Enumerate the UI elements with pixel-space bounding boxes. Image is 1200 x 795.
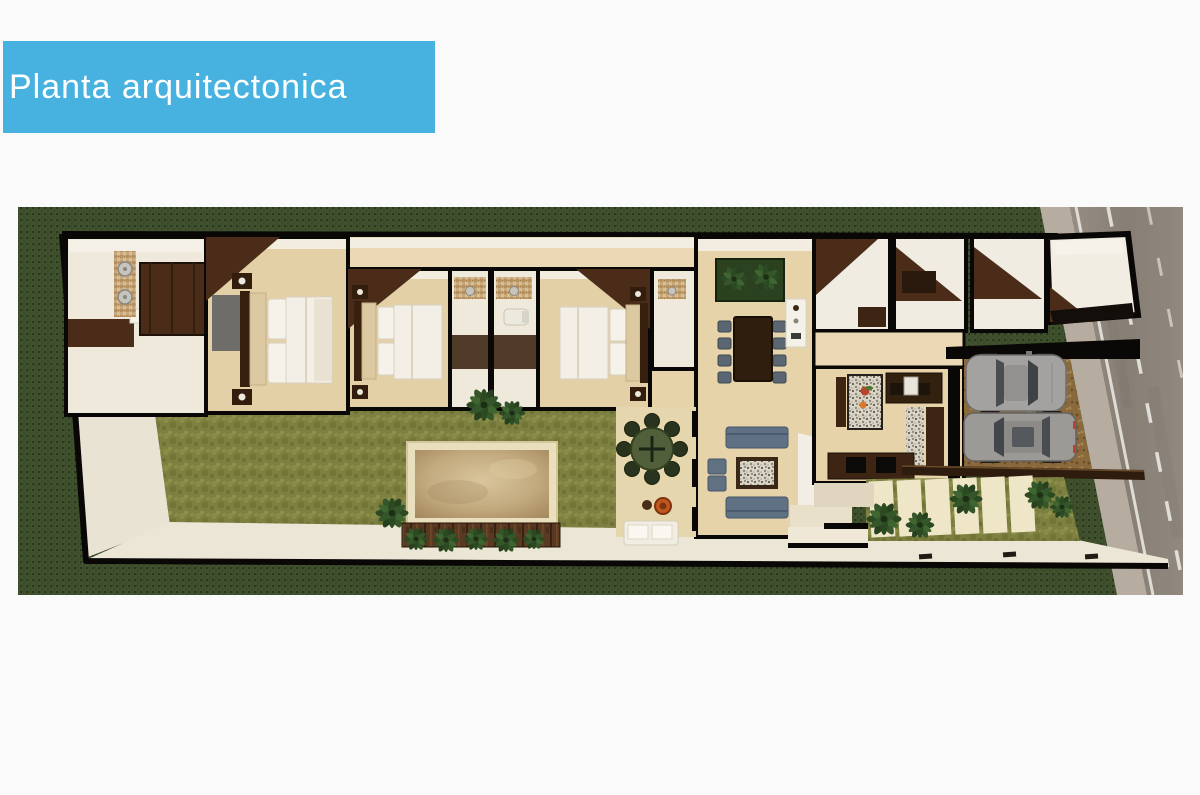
garage-storage [1047, 234, 1138, 325]
outdoor-dining-set [617, 414, 688, 485]
double-bed-1 [240, 291, 332, 387]
bathroom-1 [450, 269, 490, 409]
title-banner: Planta arquitectonica [3, 41, 435, 133]
pool [407, 442, 557, 526]
hall [652, 371, 696, 409]
bathroom-3 [652, 269, 696, 369]
dining-living-column [696, 237, 824, 537]
vanity [68, 319, 134, 347]
small-bowl [642, 500, 652, 510]
laundry-units [902, 271, 936, 293]
shower-tile-wall [114, 251, 136, 317]
service-corridor [814, 331, 964, 367]
bathroom-2 [492, 269, 538, 409]
corridor-wall [350, 238, 694, 248]
palm-planter [716, 259, 784, 301]
terrace [616, 407, 696, 545]
master-bathroom [66, 237, 206, 415]
page-title: Planta arquitectonica [9, 68, 348, 107]
lower-cabinets [828, 453, 914, 479]
sofa-top [726, 427, 788, 448]
suv-car [964, 411, 1076, 463]
kitchen-island [848, 375, 882, 429]
floor-plan-render [18, 207, 1183, 595]
kitchen [814, 367, 964, 483]
bedroom-2 [348, 269, 450, 409]
lounge-sofa [624, 521, 678, 545]
bedroom-3 [538, 269, 650, 409]
double-bed-3 [560, 303, 648, 383]
paver-path [866, 475, 1080, 541]
sedan-car [966, 351, 1066, 415]
toilet [504, 309, 529, 325]
console-table [786, 299, 806, 347]
sliding-door-wall [692, 411, 697, 531]
sofa-bottom [726, 497, 788, 518]
bedroom-1 [206, 237, 348, 413]
double-bed-2 [354, 301, 442, 381]
armchair [708, 476, 726, 491]
armchair [708, 459, 726, 474]
floor-plan-svg [18, 207, 1183, 595]
appliance [904, 377, 918, 395]
